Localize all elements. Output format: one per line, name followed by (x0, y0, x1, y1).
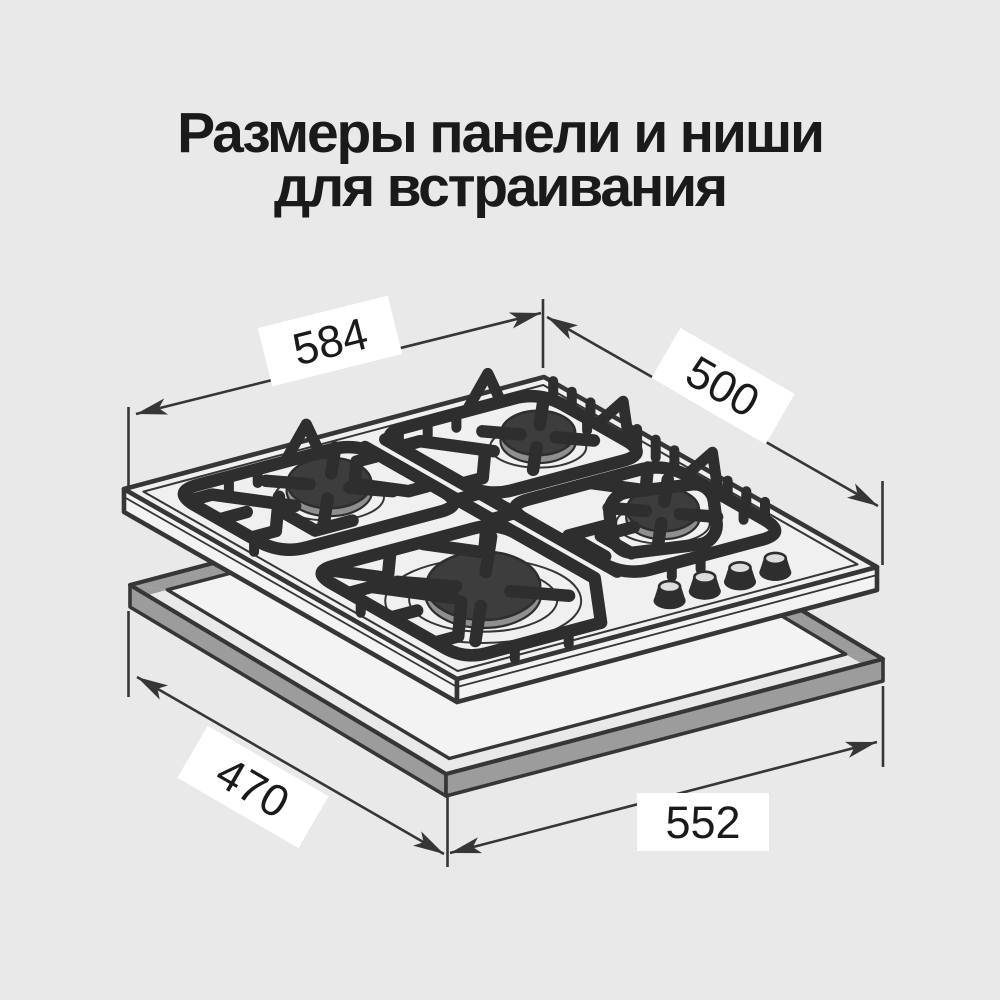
svg-text:для встраивания: для встраивания (274, 155, 726, 219)
svg-text:552: 552 (665, 797, 740, 848)
